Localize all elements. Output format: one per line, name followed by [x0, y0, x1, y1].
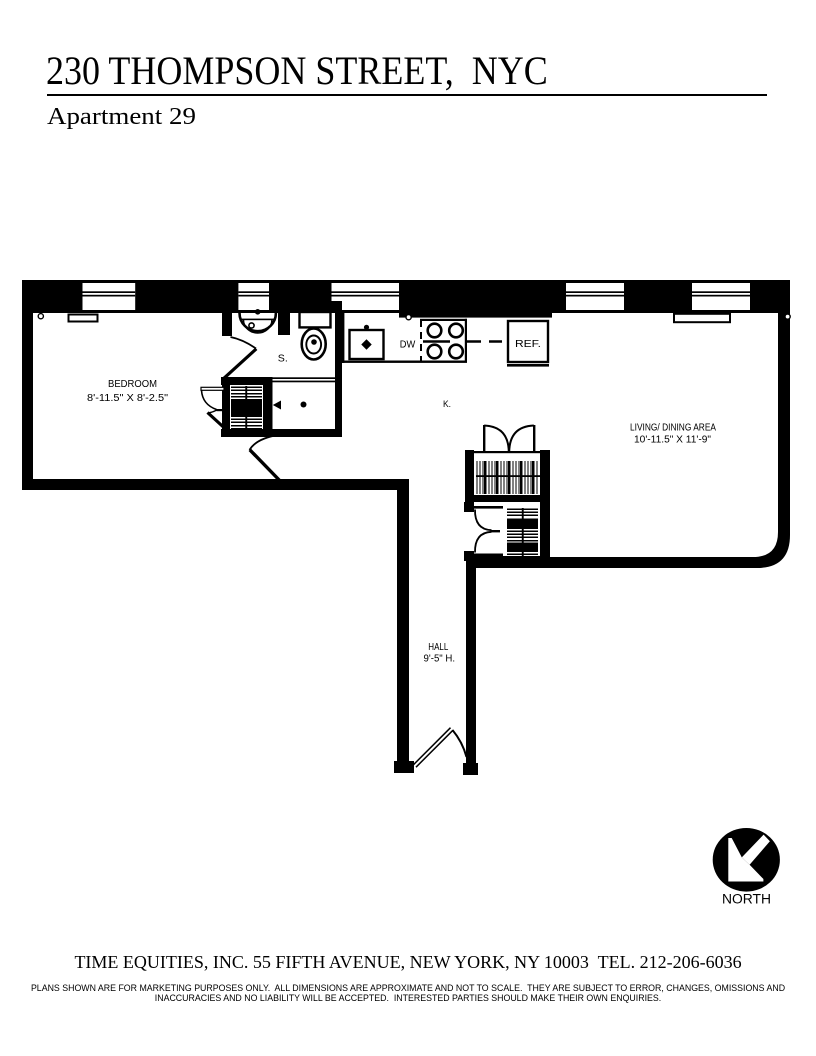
svg-text:K.: K. [443, 399, 451, 410]
svg-text:LIVING/ DINING AREA: LIVING/ DINING AREA [630, 423, 716, 434]
svg-text:HALL: HALL [428, 642, 448, 653]
svg-text:NORTH: NORTH [722, 892, 771, 907]
svg-text:S.: S. [278, 353, 288, 365]
svg-text:BEDROOM: BEDROOM [108, 379, 157, 390]
svg-text:8'-11.5" X 8'-2.5": 8'-11.5" X 8'-2.5" [87, 393, 168, 404]
svg-text:9'-5" H.: 9'-5" H. [424, 654, 456, 665]
svg-text:10'-11.5" X 11'-9": 10'-11.5" X 11'-9" [634, 435, 711, 446]
svg-text:REF.: REF. [515, 338, 541, 350]
svg-text:DW: DW [400, 339, 416, 351]
